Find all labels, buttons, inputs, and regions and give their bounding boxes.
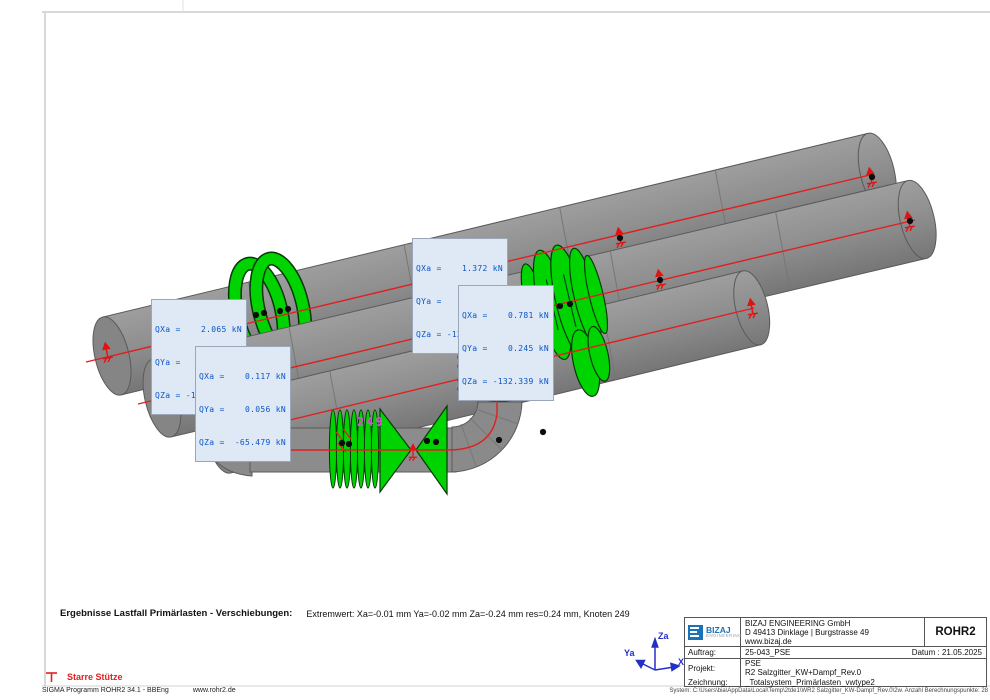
force-line: QYa = 0.056 kN	[199, 404, 286, 415]
result-summary: Ergebnisse Lastfall Primärlasten - Versc…	[60, 608, 630, 619]
footer-program: SIGMA Programm ROHR2 34.1 - BBEng	[42, 687, 169, 694]
force-line: QXa = 0.781 kN	[462, 310, 549, 321]
result-title: Ergebnisse Lastfall Primärlasten - Versc…	[60, 608, 292, 619]
force-line: QXa = 1.372 kN	[416, 263, 503, 274]
force-annotation-box: QXa = 0.781 kN QYa = 0.245 kN QZa = -132…	[458, 285, 554, 401]
company-line: www.bizaj.de	[745, 638, 924, 647]
axis-label-za: Za	[658, 631, 669, 641]
node-label-249: 249	[357, 415, 385, 429]
company-logo: BIZAJ ENGINEERING	[685, 618, 741, 646]
force-line: QYa = 0.245 kN	[462, 343, 549, 354]
projekt-label: Projekt:	[685, 659, 741, 677]
program-name: ROHR2	[925, 618, 986, 646]
rigid-support-icon	[45, 671, 58, 683]
axes-widget: Za Ya Xa	[622, 626, 692, 682]
result-extremes: Extremwert: Xa=-0.01 mm Ya=-0.02 mm Za=-…	[306, 608, 629, 619]
force-line: QZa = -132.339 kN	[462, 376, 549, 387]
axis-label-ya: Ya	[624, 648, 636, 658]
title-block-header-row: BIZAJ ENGINEERING BIZAJ ENGINEERING GmbH…	[685, 618, 986, 647]
footer-website: www.rohr2.de	[193, 687, 236, 694]
title-block: BIZAJ ENGINEERING BIZAJ ENGINEERING GmbH…	[684, 617, 987, 687]
legend-rigid-support: Starre Stütze	[45, 671, 123, 683]
datum-value: 21.05.2025	[942, 648, 982, 657]
projekt-line: R2 Salzgitter_KW+Dampf_Rev.0	[745, 669, 986, 678]
zeichnung-label: Zeichnung:	[685, 677, 741, 687]
bizaj-logo-icon	[688, 625, 703, 640]
auftrag-label: Auftrag:	[685, 647, 741, 658]
force-annotation-box: QXa = 0.117 kN QYa = 0.056 kN QZa = -65.…	[195, 346, 291, 462]
auftrag-row: Auftrag: 25-043_PSE Datum : 21.05.2025	[685, 647, 986, 659]
datum: Datum : 21.05.2025	[912, 648, 986, 657]
force-line: QZa = -65.479 kN	[199, 437, 286, 448]
rohr2-print-preview: { "colors": { "pipe_gray": "#8f8f8f", "s…	[0, 0, 990, 700]
zeichnung-value: _Totalsystem_Primärlasten_vwtype2	[741, 678, 986, 687]
logo-subtitle: ENGINEERING	[706, 634, 742, 639]
footer-program-info: SIGMA Programm ROHR2 34.1 - BBEng www.ro…	[42, 687, 236, 694]
zeichnung-row: Zeichnung: _Totalsystem_Primärlasten_vwt…	[685, 677, 986, 687]
projekt-value: PSE R2 Salzgitter_KW+Dampf_Rev.0	[741, 659, 986, 677]
legend-label: Starre Stütze	[67, 672, 123, 682]
footer-system-path: System: C:\Users\bia\AppData\Local\Temp\…	[669, 688, 988, 694]
company-address: BIZAJ ENGINEERING GmbH D 49413 Dinklage …	[741, 618, 925, 646]
force-line: QXa = 0.117 kN	[199, 371, 286, 382]
datum-label: Datum :	[912, 648, 940, 657]
auftrag-value: 25-043_PSE	[741, 648, 912, 657]
projekt-row: Projekt: PSE R2 Salzgitter_KW+Dampf_Rev.…	[685, 659, 986, 677]
force-line: QXa = 2.065 kN	[155, 324, 242, 335]
